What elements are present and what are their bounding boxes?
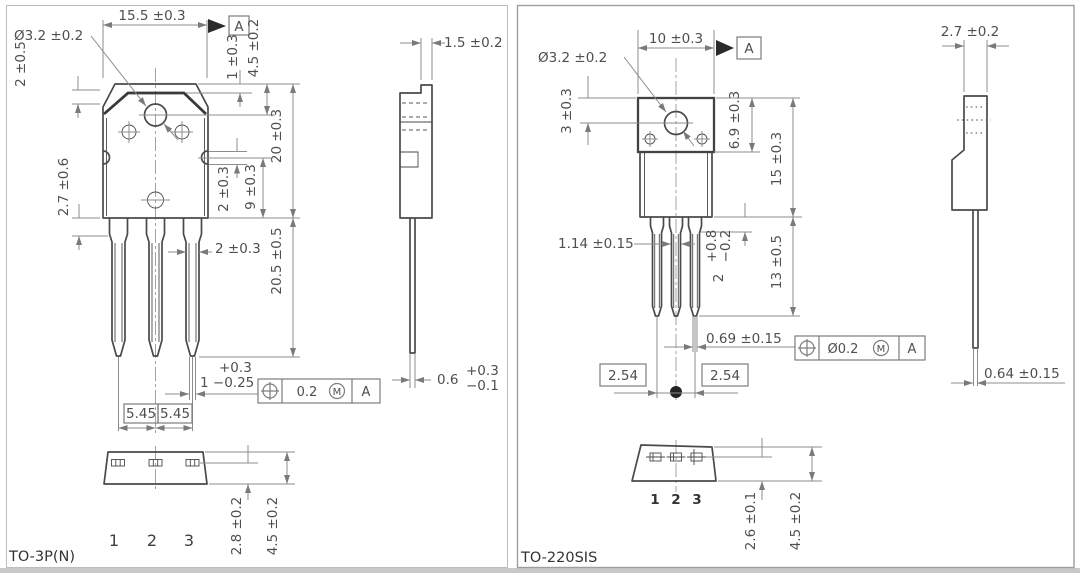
pin-number-2: 2: [147, 531, 157, 550]
dim-top-width: 15.5 ±0.3: [118, 8, 185, 24]
datum-letter: A: [234, 19, 244, 35]
dim-hole-center-offset: 4.5 ±0.2: [246, 19, 262, 78]
dim-pitch-right: 5.45: [160, 406, 190, 422]
fcf-tolerance: 0.2: [297, 385, 318, 400]
dim-lead-thickness-upper: +0.3: [219, 360, 252, 376]
pin-number-1: 1: [650, 492, 659, 508]
dim-lead-thickness-lower: 1 −0.25: [200, 375, 254, 391]
pin-number-2: 2: [671, 492, 680, 508]
package-label-to3p: TO-3P(N): [8, 549, 75, 565]
dim-bottom-outer: 4.5 ±0.2: [265, 497, 281, 556]
dim-side-lead-lower: −0.1: [466, 378, 499, 394]
package-label-to220sis: TO-220SIS: [520, 550, 597, 566]
bottom-band: [0, 568, 1080, 573]
dim-shoulder-lower: −0.2: [718, 230, 734, 263]
dim-lead-length: 20.5 ±0.5: [269, 227, 285, 294]
dim-shoulder-height: 2.7 ±0.6: [56, 158, 72, 217]
fcf-datum: A: [908, 342, 917, 357]
pin-number-3: 3: [184, 531, 194, 550]
dim-body-height: 20 ±0.3: [269, 109, 285, 163]
fcf-datum: A: [362, 385, 371, 400]
panel-to220sis: 10 ±0.3 A Ø3.2 ±0.2 3 ±0.3 6.9 ±0.3 15 ±…: [518, 6, 1075, 568]
dim-notch-diameter: 2 ±0.3: [216, 166, 232, 212]
dim-bottom-inner: 2.8 ±0.2: [229, 497, 245, 556]
dim-lead-thickness: 0.69 ±0.15: [706, 331, 782, 347]
dim-body-height: 15 ±0.3: [769, 132, 785, 186]
datum-letter: A: [744, 41, 754, 57]
dim-side-lead-upper: +0.3: [466, 363, 499, 379]
fcf-modifier: M: [333, 387, 342, 398]
dim-lead-length: 13 ±0.5: [769, 235, 785, 289]
dim-side-tab-thickness: 1.5 ±0.2: [444, 35, 503, 51]
dim-lead-width: 1.14 ±0.15: [558, 236, 634, 252]
dim-hole-diameter: Ø3.2 ±0.2: [538, 50, 607, 66]
dim-bottom-outer: 4.5 ±0.2: [788, 492, 804, 551]
panel-border-right: [518, 6, 1075, 568]
dim-tab-height: 6.9 ±0.3: [727, 91, 743, 150]
dim-pitch-right: 2.54: [710, 368, 740, 384]
dim-pitch-left: 2.54: [608, 368, 638, 384]
fcf-tolerance: Ø0.2: [828, 342, 859, 357]
pin-number-1: 1: [109, 531, 119, 550]
reference-dot: [670, 386, 682, 398]
dim-top-width: 10 ±0.3: [649, 31, 703, 47]
dim-tab-edge-offset: 1 ±0.3: [225, 34, 241, 80]
dim-pitch-left: 5.45: [126, 406, 156, 422]
pin-number-3: 3: [692, 492, 701, 508]
dim-side-lead-value: 0.6: [437, 372, 458, 388]
panel-to3p: 15.5 ±0.3 A Ø3.2 ±0.2 2 ±0.5 1 ±0.3 4.5 …: [7, 6, 508, 568]
dim-lead-width: 2 ±0.3: [215, 241, 261, 257]
dim-hole-center-offset: 3 ±0.3: [559, 88, 575, 134]
dim-shoulder-value: 2: [711, 274, 727, 283]
fcf-modifier: M: [877, 344, 886, 355]
dim-side-width: 2.7 ±0.2: [941, 24, 1000, 40]
dim-notch-to-base: 9 ±0.3: [243, 164, 259, 210]
drawing-canvas: 15.5 ±0.3 A Ø3.2 ±0.2 2 ±0.5 1 ±0.3 4.5 …: [0, 0, 1080, 573]
dim-bottom-inner: 2.6 ±0.1: [743, 492, 759, 551]
package-dimension-drawing: 15.5 ±0.3 A Ø3.2 ±0.2 2 ±0.5 1 ±0.3 4.5 …: [0, 0, 1080, 573]
dim-side-lead: 0.64 ±0.15: [984, 366, 1060, 382]
dim-chamfer-height: 2 ±0.5: [13, 41, 29, 87]
